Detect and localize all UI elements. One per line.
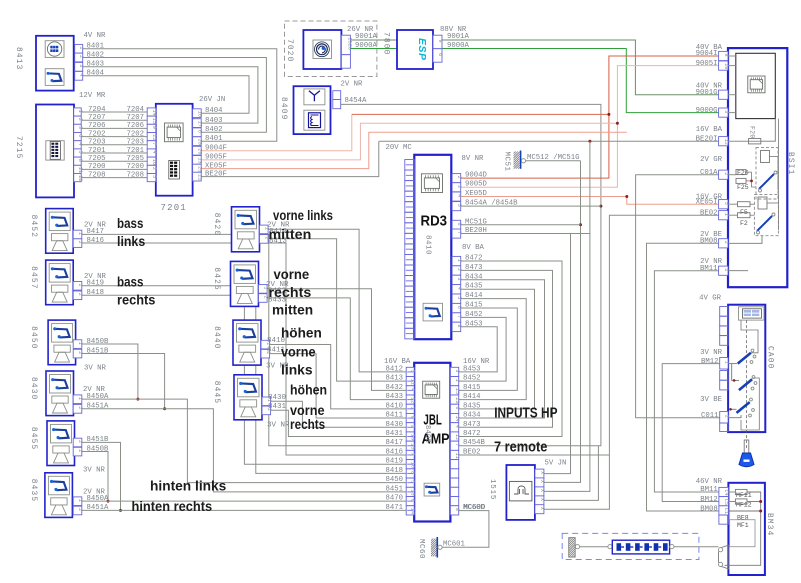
svg-text:8452: 8452: [463, 375, 481, 383]
svg-text:MC512 /MC51G: MC512 /MC51G: [527, 154, 580, 162]
svg-text:2: 2: [456, 176, 462, 179]
svg-text:1: 1: [456, 259, 462, 262]
svg-text:8430: 8430: [29, 377, 37, 401]
svg-text:4: 4: [151, 151, 157, 154]
svg-text:2: 2: [77, 440, 83, 443]
svg-text:8410: 8410: [386, 402, 404, 410]
svg-text:MF12: MF12: [736, 502, 752, 509]
svg-text:BE20I: BE20I: [696, 135, 718, 143]
svg-text:9000A: 9000A: [447, 42, 470, 50]
svg-text:8404: 8404: [87, 70, 105, 78]
svg-text:8410: 8410: [424, 235, 432, 255]
svg-text:F20: F20: [749, 126, 756, 138]
svg-text:BM12: BM12: [701, 358, 719, 366]
svg-text:7202: 7202: [88, 130, 106, 138]
svg-text:8409: 8409: [279, 97, 287, 121]
svg-text:20: 20: [196, 139, 202, 145]
svg-text:26V JN: 26V JN: [199, 96, 225, 104]
svg-text:MC51G: MC51G: [465, 218, 487, 226]
svg-text:7: 7: [456, 231, 462, 234]
svg-text:8472: 8472: [463, 430, 481, 438]
svg-text:8435: 8435: [465, 283, 483, 291]
svg-text:8432: 8432: [386, 384, 404, 392]
svg-text:8: 8: [723, 54, 729, 57]
svg-text:6: 6: [456, 306, 462, 309]
svg-text:11: 11: [454, 452, 460, 458]
svg-text:2V NR: 2V NR: [341, 81, 364, 89]
svg-text:11: 11: [196, 174, 202, 180]
svg-text:MC60: MC60: [417, 539, 425, 559]
svg-text:BE8: BE8: [737, 514, 749, 521]
svg-text:8413: 8413: [14, 47, 22, 71]
svg-text:7207: 7207: [126, 114, 144, 122]
svg-text:8412: 8412: [386, 365, 404, 373]
svg-text:7203: 7203: [126, 139, 144, 147]
svg-text:2: 2: [723, 172, 729, 175]
svg-text:C1: C1: [723, 508, 729, 514]
svg-text:4: 4: [78, 73, 84, 76]
svg-text:8408: 8408: [423, 425, 431, 443]
svg-text:8455: 8455: [29, 427, 37, 451]
svg-text:MC60D: MC60D: [464, 504, 487, 512]
svg-text:8418: 8418: [386, 467, 404, 475]
svg-text:2: 2: [78, 55, 84, 58]
svg-text:links: links: [117, 234, 145, 249]
svg-text:2V GR: 2V GR: [700, 156, 723, 164]
svg-text:8419: 8419: [87, 280, 105, 288]
svg-text:10: 10: [410, 434, 416, 440]
svg-text:12: 12: [723, 139, 729, 145]
svg-text:16: 16: [410, 462, 416, 468]
svg-text:1: 1: [77, 397, 83, 400]
svg-text:16: 16: [151, 159, 157, 165]
svg-text:7208: 7208: [126, 171, 144, 179]
svg-text:26: 26: [196, 148, 202, 154]
svg-text:6: 6: [196, 130, 202, 133]
svg-text:BM34: BM34: [765, 513, 773, 537]
svg-text:7200: 7200: [88, 163, 106, 171]
svg-text:8435: 8435: [463, 402, 481, 410]
svg-text:14: 14: [410, 508, 416, 514]
svg-text:8402: 8402: [87, 51, 105, 59]
svg-text:2: 2: [77, 351, 83, 354]
svg-text:hinten rechts: hinten rechts: [132, 499, 213, 514]
svg-text:3: 3: [78, 64, 84, 67]
svg-text:3: 3: [454, 369, 460, 372]
svg-text:MC51: MC51: [503, 152, 511, 172]
svg-text:7200: 7200: [126, 163, 144, 171]
svg-text:F26: F26: [737, 169, 749, 176]
svg-text:8450: 8450: [29, 326, 37, 350]
svg-text:3V NR: 3V NR: [83, 466, 106, 474]
svg-text:1: 1: [723, 213, 729, 216]
svg-text:8450B: 8450B: [87, 338, 110, 346]
svg-text:8416: 8416: [386, 448, 404, 456]
svg-text:8450: 8450: [386, 476, 404, 484]
svg-text:2: 2: [77, 241, 83, 244]
svg-text:BM08: BM08: [700, 505, 718, 513]
svg-text:3: 3: [456, 277, 462, 280]
svg-text:vorne: vorne: [290, 403, 325, 418]
svg-text:7800: 7800: [382, 32, 390, 56]
svg-text:7206: 7206: [126, 122, 144, 130]
svg-text:13: 13: [196, 157, 202, 163]
svg-text:8402: 8402: [205, 126, 223, 134]
svg-text:8404: 8404: [205, 107, 223, 115]
svg-text:4V NR: 4V NR: [84, 32, 107, 40]
svg-text:F25: F25: [737, 184, 749, 191]
svg-text:8431: 8431: [268, 403, 287, 411]
svg-text:14: 14: [454, 416, 460, 422]
svg-text:rechts: rechts: [117, 293, 155, 308]
svg-text:CA00: CA00: [766, 346, 774, 370]
svg-text:2: 2: [77, 406, 83, 409]
svg-text:4: 4: [454, 425, 460, 428]
svg-text:höhen: höhen: [281, 326, 322, 341]
svg-text:8401: 8401: [87, 43, 105, 51]
svg-text:4V GR: 4V GR: [699, 295, 722, 303]
svg-text:9005D: 9005D: [465, 181, 488, 189]
svg-text:6: 6: [454, 406, 460, 409]
svg-text:8401: 8401: [205, 135, 223, 143]
svg-text:F2: F2: [740, 220, 748, 227]
svg-text:8413: 8413: [386, 375, 404, 383]
svg-text:20V MC: 20V MC: [386, 144, 413, 152]
svg-text:8472: 8472: [465, 255, 483, 263]
svg-text:RD3: RD3: [421, 213, 448, 230]
svg-text:8434: 8434: [463, 412, 481, 420]
svg-text:8430: 8430: [268, 394, 287, 402]
svg-text:3V BE: 3V BE: [700, 396, 722, 404]
svg-text:8V BA: 8V BA: [462, 244, 485, 252]
svg-text:8417: 8417: [87, 228, 105, 236]
svg-text:8471: 8471: [386, 504, 404, 512]
svg-text:7207: 7207: [88, 114, 106, 122]
svg-text:5V JN: 5V JN: [545, 460, 567, 468]
svg-text:8425: 8425: [212, 267, 220, 291]
svg-text:mitten: mitten: [269, 227, 312, 242]
svg-text:3V NR: 3V NR: [267, 422, 290, 430]
svg-text:1515: 1515: [488, 479, 496, 500]
svg-text:C4: C4: [723, 490, 729, 496]
svg-text:8453: 8453: [463, 365, 481, 373]
svg-text:10: 10: [723, 63, 729, 69]
svg-text:vorne: vorne: [274, 267, 310, 282]
svg-text:9005F: 9005F: [205, 154, 227, 162]
svg-text:höhen: höhen: [290, 382, 327, 397]
svg-text:8403: 8403: [87, 61, 105, 69]
svg-text:14: 14: [151, 110, 157, 116]
svg-text:XE05F: XE05F: [205, 162, 227, 170]
svg-text:2: 2: [723, 415, 729, 418]
svg-text:7204: 7204: [126, 106, 144, 114]
svg-text:3: 3: [456, 185, 462, 188]
svg-text:12: 12: [410, 397, 416, 403]
svg-text:1: 1: [78, 46, 84, 49]
svg-text:8451: 8451: [386, 485, 404, 493]
svg-text:XE05D: XE05D: [465, 190, 488, 198]
svg-text:8: 8: [454, 508, 460, 511]
svg-text:9004I: 9004I: [696, 50, 718, 58]
svg-text:7203: 7203: [88, 139, 106, 147]
svg-text:8450A: 8450A: [87, 495, 110, 503]
svg-text:hinten links: hinten links: [150, 479, 226, 494]
svg-text:9005I: 9005I: [696, 60, 718, 68]
svg-text:8454A /8454B: 8454A /8454B: [465, 200, 518, 208]
svg-text:8450A: 8450A: [87, 393, 110, 401]
svg-text:46V NR: 46V NR: [696, 478, 723, 486]
svg-text:INPUTS HP: INPUTS HP: [494, 406, 558, 422]
svg-text:8440: 8440: [212, 326, 220, 350]
svg-text:MF1: MF1: [737, 522, 749, 529]
svg-text:2: 2: [723, 241, 729, 244]
svg-text:8420: 8420: [212, 213, 220, 237]
svg-text:8453: 8453: [465, 320, 483, 328]
svg-text:8451A: 8451A: [87, 403, 110, 411]
svg-text:links: links: [281, 363, 313, 378]
svg-text:8452: 8452: [29, 215, 37, 239]
svg-text:1: 1: [723, 361, 729, 364]
svg-text:25: 25: [196, 166, 202, 172]
svg-text:1: 1: [77, 283, 83, 286]
svg-text:7: 7: [454, 443, 460, 446]
svg-text:8445: 8445: [212, 381, 220, 405]
svg-text:BE20H: BE20H: [465, 227, 487, 235]
svg-text:8414: 8414: [465, 292, 483, 300]
svg-text:5: 5: [456, 296, 462, 299]
svg-text:8434: 8434: [465, 273, 483, 281]
svg-text:8450B: 8450B: [87, 445, 110, 453]
svg-text:bass: bass: [117, 216, 143, 231]
svg-text:MC601: MC601: [443, 540, 466, 548]
svg-text:9001A: 9001A: [447, 33, 470, 41]
svg-text:BE02: BE02: [700, 209, 718, 217]
svg-text:17: 17: [196, 121, 202, 127]
svg-text:13: 13: [410, 489, 416, 495]
svg-text:BE02: BE02: [463, 448, 481, 456]
svg-text:7: 7: [456, 315, 462, 318]
svg-text:8435: 8435: [29, 479, 37, 503]
svg-text:8470: 8470: [386, 495, 404, 503]
svg-text:8: 8: [456, 324, 462, 327]
svg-text:5: 5: [723, 202, 729, 205]
svg-text:8454A: 8454A: [345, 97, 368, 105]
svg-text:vorne: vorne: [281, 345, 316, 360]
svg-text:C5: C5: [723, 499, 729, 505]
svg-text:2: 2: [77, 293, 83, 296]
svg-text:3V NR: 3V NR: [84, 364, 107, 372]
svg-text:8415: 8415: [465, 302, 483, 310]
svg-text:8419: 8419: [386, 458, 404, 466]
svg-text:8430: 8430: [386, 421, 404, 429]
svg-text:8417: 8417: [386, 439, 404, 447]
svg-text:12: 12: [454, 434, 460, 440]
svg-text:3V NR: 3V NR: [700, 349, 723, 357]
svg-text:7201: 7201: [161, 203, 187, 213]
svg-text:rechts: rechts: [290, 417, 325, 432]
svg-text:8403: 8403: [205, 117, 223, 125]
svg-text:8451A: 8451A: [87, 504, 110, 512]
svg-text:mitten: mitten: [272, 303, 313, 318]
svg-text:7206: 7206: [88, 122, 106, 130]
svg-text:7201: 7201: [126, 147, 144, 155]
svg-text:6: 6: [456, 222, 462, 225]
svg-text:8433: 8433: [386, 393, 404, 401]
svg-text:16V BA: 16V BA: [696, 126, 723, 134]
svg-text:8416: 8416: [87, 237, 105, 245]
svg-text:C011: C011: [701, 412, 719, 420]
svg-text:5: 5: [151, 175, 157, 178]
svg-text:8431: 8431: [386, 430, 404, 438]
svg-text:4: 4: [456, 194, 462, 197]
svg-text:1: 1: [77, 499, 83, 502]
svg-text:BM11: BM11: [700, 486, 718, 494]
svg-text:8473: 8473: [465, 264, 483, 272]
svg-text:BM11: BM11: [700, 265, 718, 273]
svg-text:BE20F: BE20F: [205, 170, 227, 178]
svg-text:1: 1: [723, 268, 729, 271]
svg-text:8V NR: 8V NR: [462, 155, 485, 163]
svg-text:ESP: ESP: [416, 38, 428, 61]
svg-text:vorne links: vorne links: [273, 208, 333, 223]
svg-text:9: 9: [437, 39, 443, 42]
svg-text:6: 6: [437, 53, 443, 56]
svg-text:2: 2: [77, 508, 83, 511]
svg-text:8418: 8418: [87, 289, 105, 297]
svg-text:15: 15: [454, 388, 460, 394]
svg-text:12V MR: 12V MR: [79, 92, 106, 100]
svg-text:9004D: 9004D: [465, 172, 488, 180]
svg-text:2: 2: [456, 268, 462, 271]
svg-text:11: 11: [410, 379, 416, 385]
svg-text:7208: 7208: [88, 171, 106, 179]
svg-text:13: 13: [454, 397, 460, 403]
svg-text:bass: bass: [117, 274, 143, 289]
svg-text:XE05I: XE05I: [696, 199, 718, 207]
svg-text:7020: 7020: [285, 39, 293, 63]
svg-text:12: 12: [77, 175, 83, 181]
svg-text:7201: 7201: [88, 147, 106, 155]
svg-text:5: 5: [456, 204, 462, 207]
svg-text:1: 1: [77, 342, 83, 345]
svg-text:BSI1: BSI1: [786, 152, 794, 176]
svg-text:C01A: C01A: [700, 169, 718, 177]
svg-text:7204: 7204: [88, 106, 106, 114]
svg-text:15: 15: [410, 443, 416, 449]
svg-text:8451B: 8451B: [87, 436, 110, 444]
svg-text:9001G: 9001G: [696, 89, 718, 97]
svg-text:9004F: 9004F: [205, 145, 227, 153]
svg-text:MF11: MF11: [736, 492, 752, 499]
svg-text:8473: 8473: [463, 421, 481, 429]
svg-text:8415: 8415: [463, 384, 481, 392]
svg-text:8411: 8411: [386, 412, 404, 420]
svg-text:7: 7: [151, 142, 157, 145]
svg-text:1: 1: [77, 449, 83, 452]
svg-text:8451B: 8451B: [87, 347, 110, 355]
svg-text:15: 15: [151, 118, 157, 124]
svg-text:11: 11: [151, 134, 157, 140]
svg-text:3: 3: [723, 110, 729, 113]
svg-text:BM12: BM12: [700, 496, 718, 504]
svg-text:4: 4: [456, 287, 462, 290]
svg-text:8454B: 8454B: [463, 439, 486, 447]
svg-text:1: 1: [454, 379, 460, 382]
svg-text:7205: 7205: [126, 155, 144, 163]
svg-text:7205: 7205: [88, 155, 106, 163]
svg-text:2: 2: [151, 167, 157, 170]
svg-text:8457: 8457: [29, 266, 37, 290]
svg-text:9: 9: [151, 126, 157, 129]
svg-text:1: 1: [77, 232, 83, 235]
svg-text:9000G: 9000G: [696, 107, 718, 115]
svg-text:rechts: rechts: [269, 285, 312, 300]
svg-text:7202: 7202: [126, 130, 144, 138]
svg-text:BM08: BM08: [700, 238, 718, 246]
svg-text:7215: 7215: [14, 136, 22, 160]
svg-text:7 remote: 7 remote: [494, 440, 547, 456]
svg-text:16: 16: [196, 111, 202, 117]
svg-text:11: 11: [77, 167, 83, 173]
svg-text:8452: 8452: [465, 311, 483, 319]
svg-text:8414: 8414: [463, 393, 481, 401]
